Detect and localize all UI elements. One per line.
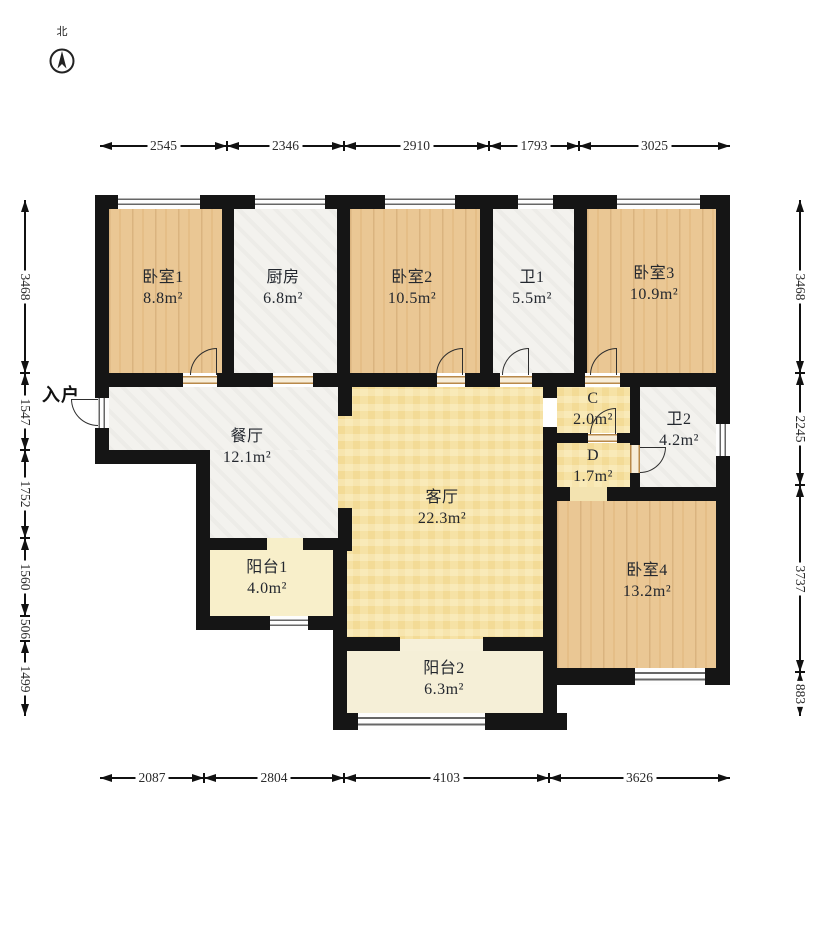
door-arc: [71, 399, 98, 426]
wall: [543, 378, 557, 398]
dim-tick: [20, 537, 30, 539]
door-sill: [500, 376, 532, 384]
dim-segment-top: 3025: [579, 140, 730, 152]
dim-tick: [548, 773, 550, 783]
dim-label: 3737: [792, 562, 808, 595]
dim-segment-bottom: 2087: [100, 772, 204, 784]
room-dining: [210, 450, 352, 538]
dim-tick: [20, 615, 30, 617]
dim-label: 1499: [17, 662, 33, 695]
wall: [109, 373, 183, 387]
dim-segment-top: 2346: [227, 140, 344, 152]
wall: [217, 373, 273, 387]
door-sill: [630, 445, 640, 473]
window: [635, 668, 705, 685]
dim-segment-left: 506: [19, 616, 31, 641]
door-sill: [585, 376, 620, 384]
wall: [543, 487, 570, 501]
dim-segment-right: 3468: [794, 200, 806, 373]
dim-label: 2245: [792, 413, 808, 446]
dim-label: 3626: [623, 770, 656, 786]
wall: [532, 373, 585, 387]
dim-tick: [795, 484, 805, 486]
dim-label: 506: [17, 615, 33, 641]
window: [118, 195, 200, 209]
dim-tick: [488, 141, 490, 151]
dim-label: 2346: [269, 138, 302, 154]
dim-label: 3025: [638, 138, 671, 154]
wall: [630, 378, 640, 445]
dim-label: 1547: [17, 395, 33, 428]
window: [255, 195, 325, 209]
window: [270, 616, 308, 630]
wall: [210, 538, 267, 550]
dim-segment-left: 1752: [19, 450, 31, 538]
door-sill: [437, 376, 465, 384]
dim-label: 883: [792, 681, 808, 707]
room-hall-d: [557, 443, 630, 487]
room-balcony2: [347, 651, 543, 713]
dim-label: 2545: [147, 138, 180, 154]
dim-segment-left: 1560: [19, 538, 31, 616]
wall: [574, 209, 587, 373]
wall: [557, 433, 588, 443]
dim-segment-top: 2545: [100, 140, 227, 152]
room-living: [338, 387, 543, 651]
wall: [716, 501, 730, 685]
dim-label: 1560: [17, 561, 33, 594]
dim-label: 4103: [430, 770, 463, 786]
dim-segment-bottom: 3626: [549, 772, 730, 784]
wall: [543, 427, 557, 668]
wall: [333, 637, 400, 651]
dim-segment-bottom: 2804: [204, 772, 344, 784]
wall: [196, 450, 210, 630]
dim-label: 2910: [400, 138, 433, 154]
window: [385, 195, 455, 209]
wall: [630, 473, 640, 501]
dim-segment-left: 1547: [19, 373, 31, 450]
room-kitchen: [234, 209, 337, 373]
dim-label: 3468: [792, 270, 808, 303]
wall: [617, 433, 630, 443]
room-balcony1: [210, 550, 333, 616]
wall: [95, 450, 210, 464]
dim-segment-right: 2245: [794, 373, 806, 485]
dim-label: 2804: [258, 770, 291, 786]
dim-segment-right: 3737: [794, 485, 806, 672]
dim-tick: [578, 141, 580, 151]
window: [518, 195, 553, 209]
dim-segment-right: 883: [794, 672, 806, 716]
wall: [222, 209, 234, 373]
room-bath1: [493, 209, 574, 373]
wall: [338, 508, 352, 551]
dim-tick: [795, 671, 805, 673]
door-opening: [267, 538, 303, 550]
door-opening: [570, 487, 607, 501]
floor-plan: 卧室18.8m²厨房6.8m²卧室210.5m²卫15.5m²卧室310.9m²…: [0, 0, 831, 927]
door-sill: [273, 376, 313, 384]
wall: [333, 538, 347, 730]
room-bedroom4: [557, 501, 716, 668]
window: [716, 424, 730, 456]
door-opening: [400, 639, 483, 651]
dim-tick: [795, 372, 805, 374]
dim-segment-left: 3468: [19, 200, 31, 373]
dim-tick: [20, 372, 30, 374]
door-sill: [588, 434, 617, 442]
dim-segment-left: 1499: [19, 641, 31, 716]
window: [358, 713, 485, 730]
room-bedroom3: [587, 209, 716, 373]
dim-label: 1793: [518, 138, 551, 154]
room-bath2: [640, 387, 716, 487]
room-bedroom1: [109, 209, 222, 373]
wall: [465, 373, 500, 387]
wall: [607, 487, 730, 501]
dim-label: 1752: [17, 478, 33, 511]
dim-tick: [343, 773, 345, 783]
window: [617, 195, 700, 209]
wall: [480, 209, 493, 373]
dim-tick: [20, 640, 30, 642]
wall: [95, 195, 109, 398]
dim-tick: [226, 141, 228, 151]
door-sill: [183, 376, 217, 384]
wall: [313, 373, 437, 387]
dim-segment-bottom: 4103: [344, 772, 549, 784]
dim-label: 2087: [136, 770, 169, 786]
dim-tick: [343, 141, 345, 151]
dim-tick: [20, 449, 30, 451]
dim-tick: [203, 773, 205, 783]
dim-segment-top: 2910: [344, 140, 489, 152]
dim-label: 3468: [17, 270, 33, 303]
room-dining: [109, 387, 352, 450]
wall: [337, 209, 350, 373]
dim-segment-top: 1793: [489, 140, 579, 152]
